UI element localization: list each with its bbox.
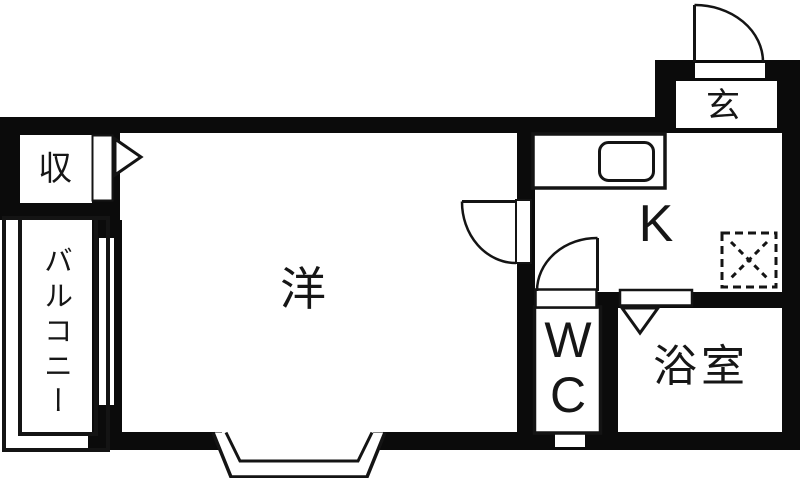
entrance-door-opening <box>695 63 765 78</box>
bay-window-inner <box>226 433 372 462</box>
kitchen-door-arc <box>537 238 598 291</box>
wc-label: W C <box>544 313 591 423</box>
western-room-label: 洋 <box>280 266 326 312</box>
kitchen-sink <box>600 143 654 181</box>
balcony-label: バルコニー <box>41 246 70 421</box>
entrance-door-arc <box>695 5 764 62</box>
bathroom-door-fold-icon <box>622 308 658 333</box>
kitchen-door-frame <box>536 290 597 308</box>
kitchen-label: K <box>639 198 674 250</box>
bathroom-label: 浴室 <box>653 345 749 389</box>
floor-plan-drawing <box>0 0 800 478</box>
closet-label: 収 <box>38 152 72 186</box>
wall-south <box>88 432 800 450</box>
closet-door <box>93 136 113 201</box>
wall-top <box>0 117 673 133</box>
wall-right <box>782 60 800 450</box>
western-room-door-arc <box>462 202 516 264</box>
closet-door-fold-icon <box>115 139 141 175</box>
refrigerator-space <box>722 233 776 287</box>
bathroom-door-frame <box>620 290 692 306</box>
entrance-label: 玄 <box>706 89 740 123</box>
western-room-door-frame <box>516 200 531 263</box>
floor-plan: 収 バルコニー 洋 K 玄 W C 浴室 <box>0 0 800 478</box>
